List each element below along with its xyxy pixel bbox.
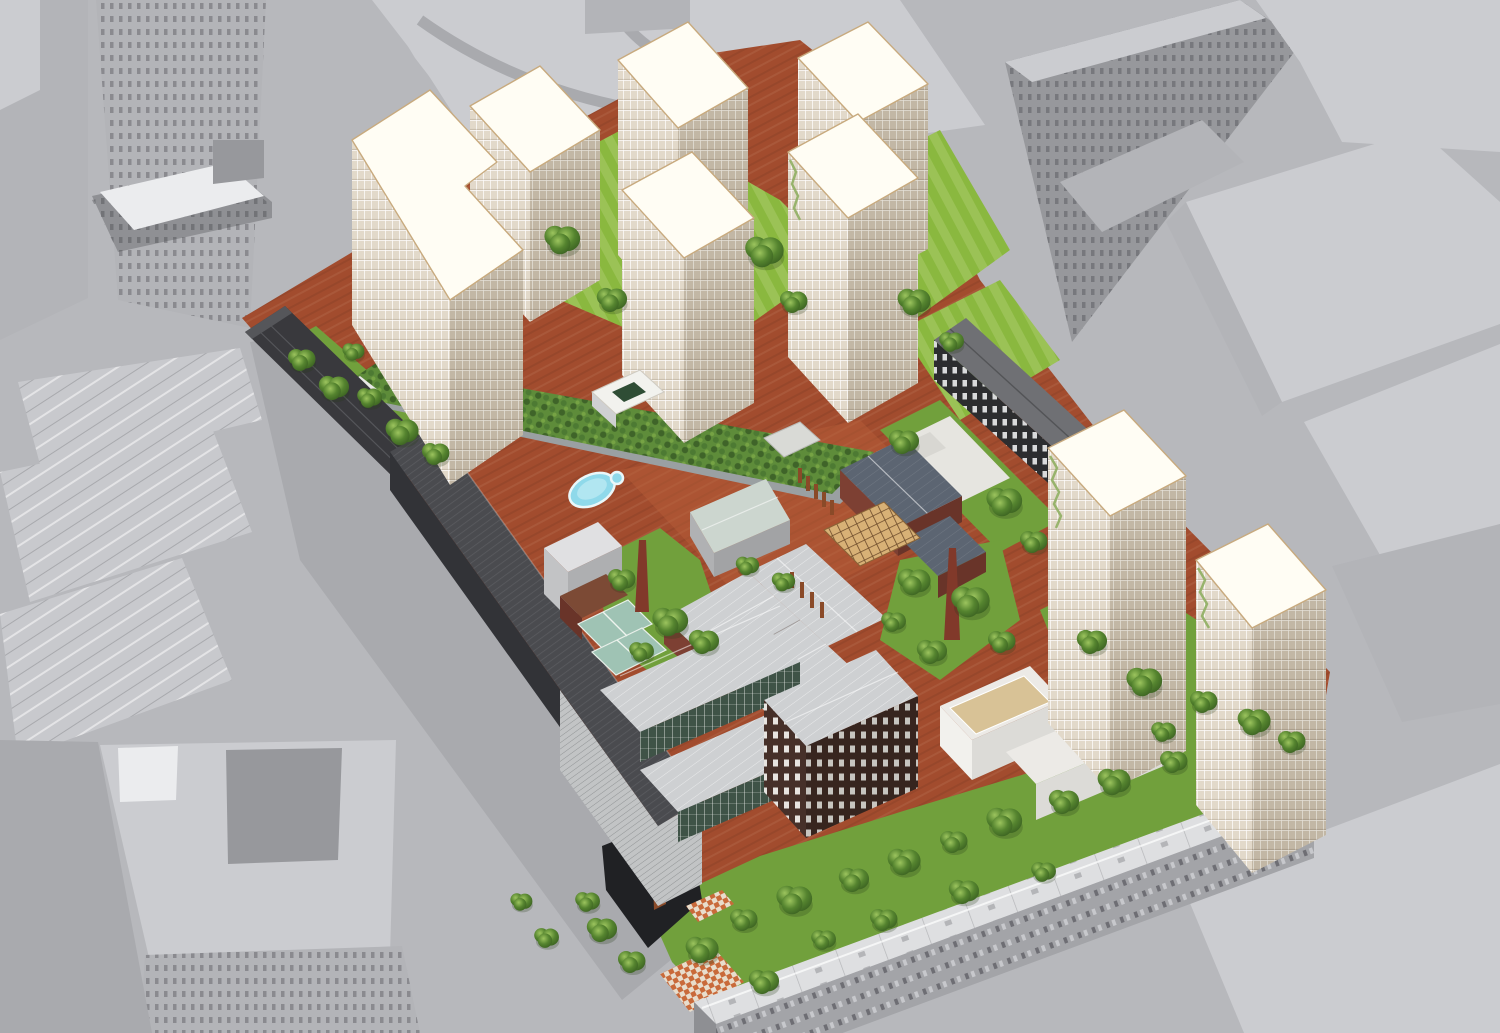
- context-courtyard: [226, 748, 342, 864]
- context-tenement-windows: [140, 946, 420, 1033]
- context-roof: [118, 746, 178, 802]
- masterplan-rendering: [0, 0, 1500, 1033]
- scene-canvas: [0, 0, 1500, 1033]
- context-tower: [213, 140, 264, 184]
- pool-spa-circle: [611, 472, 623, 484]
- tower-6: [788, 114, 918, 423]
